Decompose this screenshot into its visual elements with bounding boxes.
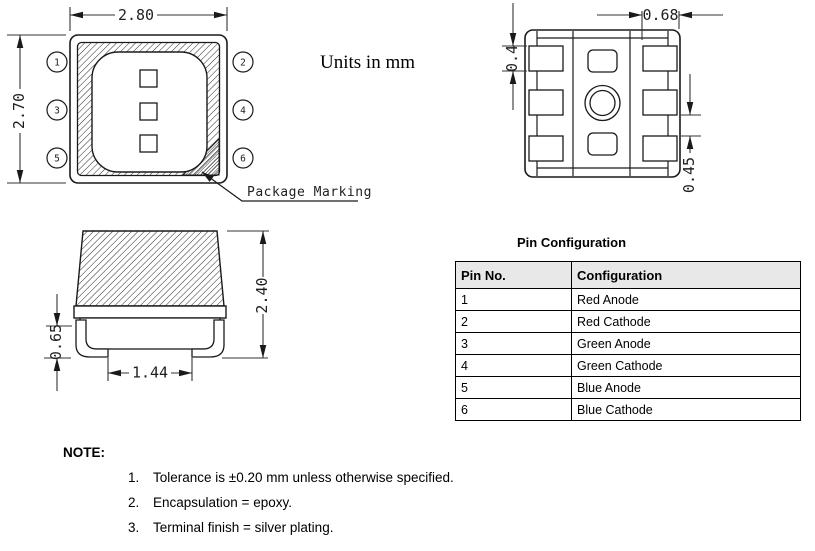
pin-no-cell: 2 [456, 311, 572, 333]
table-row: 3 Green Anode [456, 333, 801, 355]
note-number: 2. [128, 496, 153, 510]
header-configuration: Configuration [572, 262, 801, 289]
configuration-cell: Red Cathode [572, 311, 801, 333]
units-note: Units in mm [320, 52, 415, 74]
pad-left-1 [529, 46, 563, 71]
pin-no-cell: 6 [456, 399, 572, 421]
pad-right-1 [643, 46, 677, 71]
led-chip-1 [140, 70, 157, 87]
top-width-dim-label: 2.80 [118, 6, 154, 24]
datasheet-package-drawing: 1 2 3 4 5 6 2.80 [0, 0, 815, 551]
configuration-cell: Green Anode [572, 333, 801, 355]
bottom-view-drawing: 0.68 0.4 0.45 [502, 3, 723, 193]
pin-3-label: 3 [54, 106, 60, 117]
pad-height-dim-label: 0.4 [503, 45, 521, 72]
pin-no-cell: 5 [456, 377, 572, 399]
pad-right-2 [643, 90, 677, 115]
side-view-lower-body [80, 318, 220, 349]
pin-6-label: 6 [240, 154, 246, 165]
pin-no-cell: 4 [456, 355, 572, 377]
configuration-cell: Red Anode [572, 289, 801, 311]
total-height-dim-label: 2.40 [253, 277, 271, 313]
thermal-pad-bottom [588, 133, 617, 155]
table-header-row: Pin No. Configuration [456, 262, 801, 289]
notes-list: 1. Tolerance is ±0.20 mm unless otherwis… [128, 471, 558, 546]
pin-configuration-title: Pin Configuration [517, 235, 626, 250]
pad-gap-dim-label: 0.45 [680, 157, 698, 193]
table-row: 2 Red Cathode [456, 311, 801, 333]
table-row: 6 Blue Cathode [456, 399, 801, 421]
note-text: Encapsulation = epoxy. [153, 496, 292, 510]
note-item: 2. Encapsulation = epoxy. [128, 496, 558, 510]
pin-5-label: 5 [54, 154, 60, 165]
note-item: 3. Terminal finish = silver plating. [128, 521, 558, 535]
table-row: 1 Red Anode [456, 289, 801, 311]
side-view-base-strip [74, 306, 226, 318]
note-number: 1. [128, 471, 153, 485]
note-text: Terminal finish = silver plating. [153, 521, 333, 535]
table-row: 4 Green Cathode [456, 355, 801, 377]
table-row: 5 Blue Anode [456, 377, 801, 399]
notes-heading: NOTE: [63, 445, 105, 460]
pad-right-3 [643, 136, 677, 161]
pin-configuration-table-wrap: Pin No. Configuration 1 Red Anode 2 Red … [455, 261, 801, 421]
led-chips [140, 70, 157, 152]
note-number: 3. [128, 521, 153, 535]
pin-configuration-table: Pin No. Configuration 1 Red Anode 2 Red … [455, 261, 801, 421]
standoff-dim-label: 0.65 [47, 324, 65, 360]
configuration-cell: Green Cathode [572, 355, 801, 377]
thermal-pad-top [588, 50, 617, 72]
pin-4-label: 4 [240, 106, 246, 117]
led-chip-2 [140, 103, 157, 120]
configuration-cell: Blue Cathode [572, 399, 801, 421]
pin-2-label: 2 [240, 58, 246, 69]
top-view-drawing: 1 2 3 4 5 6 2.80 [7, 6, 372, 201]
note-item: 1. Tolerance is ±0.20 mm unless otherwis… [128, 471, 558, 485]
lead-span-dim-label: 1.44 [132, 364, 168, 382]
pin-no-cell: 3 [456, 333, 572, 355]
led-chip-3 [140, 135, 157, 152]
header-pin-no: Pin No. [456, 262, 572, 289]
side-view-lens-body [76, 231, 224, 306]
pad-left-2 [529, 90, 563, 115]
pad-left-3 [529, 136, 563, 161]
pad-width-dim-label: 0.68 [642, 6, 678, 24]
pin-1-label: 1 [54, 58, 60, 69]
note-text: Tolerance is ±0.20 mm unless otherwise s… [153, 471, 454, 485]
side-view-drawing: 0.65 2.40 1.44 [44, 231, 271, 391]
configuration-cell: Blue Anode [572, 377, 801, 399]
package-marking-label: Package Marking [247, 185, 372, 200]
pin-no-cell: 1 [456, 289, 572, 311]
pad-gap-dimension [681, 74, 701, 153]
top-height-dim-label: 2.70 [10, 93, 28, 129]
